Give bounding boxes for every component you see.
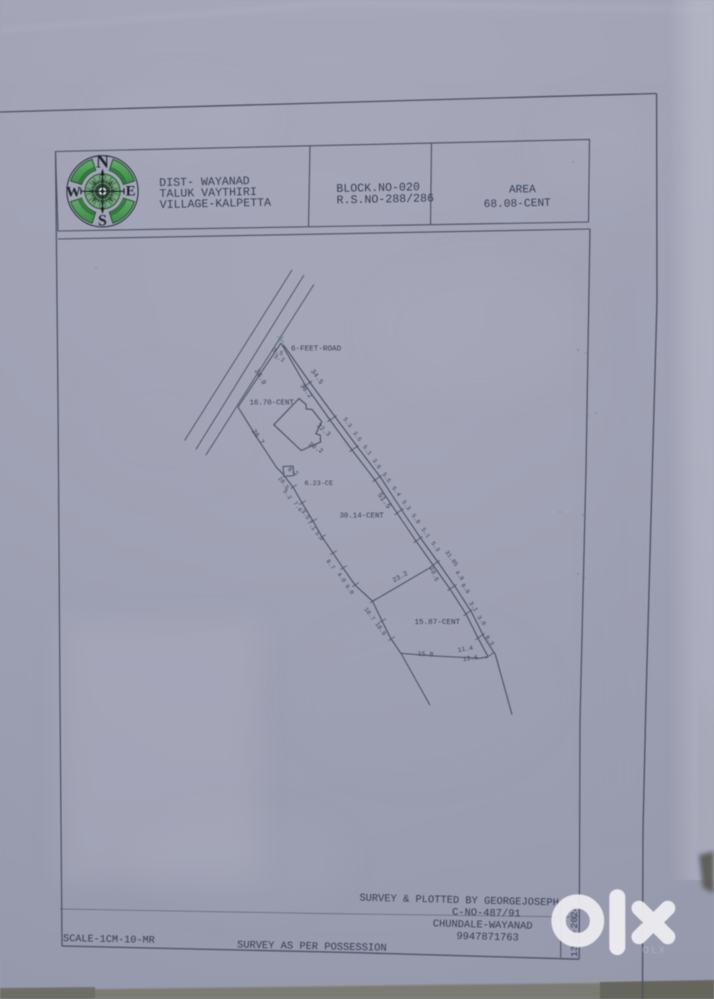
svg-text:W: W (66, 184, 81, 200)
svg-text:VILLAGE-KALPETTA: VILLAGE-KALPETTA (160, 197, 272, 212)
svg-text:AREA: AREA (509, 184, 536, 197)
svg-text:30.14-CENT: 30.14-CENT (340, 513, 385, 521)
svg-text:N: N (96, 151, 109, 171)
svg-text:15.87-CENT: 15.87-CENT (415, 619, 461, 627)
svg-text:9947871763: 9947871763 (456, 931, 519, 945)
svg-text:SCALE-1CM-10-MR: SCALE-1CM-10-MR (63, 934, 155, 947)
svg-text:16.70-CENT: 16.70-CENT (250, 400, 295, 408)
svg-text:6-FEET-ROAD: 6-FEET-ROAD (291, 346, 342, 354)
svg-text:O L X: O L X (642, 945, 665, 955)
svg-text:6.23-CE: 6.23-CE (305, 480, 334, 488)
svg-text:15.8: 15.8 (417, 651, 433, 659)
svg-text:68.08-CENT: 68.08-CENT (484, 198, 552, 211)
svg-text:R.S.NO-288/286: R.S.NO-288/286 (336, 192, 434, 207)
svg-text:S: S (98, 213, 107, 230)
svg-text:E: E (126, 184, 136, 200)
